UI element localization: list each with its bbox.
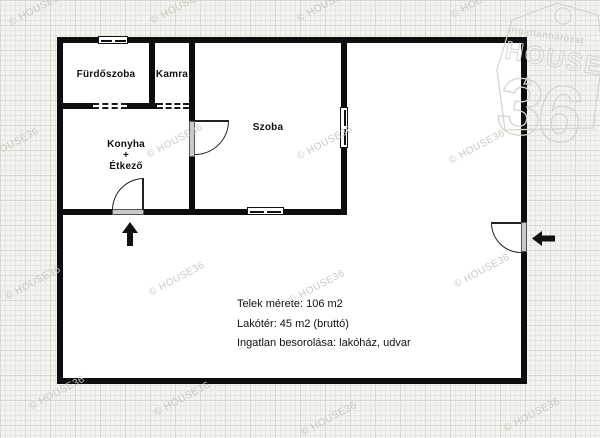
house-wall-bottom-right — [144, 209, 347, 215]
pantry-opening — [157, 103, 189, 109]
house-wall-right-upper — [341, 43, 347, 107]
watermark: © HOUSE36 — [299, 400, 358, 438]
watermark: © HOUSE36 — [7, 0, 66, 28]
watermark: © HOUSE36 — [449, 0, 508, 20]
bathroom-label: Fürdőszoba — [63, 69, 149, 80]
classification-text: Ingatlan besorolása: lakóház, udvar — [237, 334, 411, 354]
watermark: © HOUSE36 — [0, 126, 41, 165]
wall-below-bathroom — [63, 103, 93, 109]
watermark: © HOUSE36 — [3, 264, 62, 303]
pantry-label: Kamra — [153, 69, 191, 80]
kitchen-label-line2: + — [63, 150, 189, 161]
room-label: Szoba — [195, 122, 341, 133]
watermark: © HOUSE36 — [152, 380, 211, 419]
bathroom-window — [98, 36, 128, 44]
house-wall-right-lower — [341, 147, 347, 209]
bathroom-opening — [93, 103, 127, 109]
logo-tag-hole — [555, 8, 571, 24]
wall-below-pantry — [127, 103, 157, 109]
room-window-bottom — [247, 207, 284, 215]
plot-wall-right-upper — [521, 37, 527, 222]
watermark: © HOUSE36 — [149, 0, 208, 26]
plot-wall-right-lower — [521, 252, 527, 384]
room-window-right — [340, 107, 348, 148]
kitchen-label-line1: Konyha — [63, 139, 189, 150]
property-info: Telek mérete: 106 m2 Lakótér: 45 m2 (bru… — [237, 295, 411, 354]
living-area-text: Lakótér: 45 m2 (bruttó) — [237, 315, 411, 335]
kitchen-dining-label: Konyha + Étkező — [63, 139, 189, 172]
kitchen-label-line3: Étkező — [63, 161, 189, 172]
wall-kitchen-room-upper — [189, 43, 195, 121]
house-wall-bottom-left — [57, 209, 112, 215]
wall-kitchen-room-lower — [189, 157, 195, 209]
watermark: © HOUSE36 — [295, 0, 354, 24]
gate-arrow-left-icon — [532, 231, 556, 246]
entrance-arrow-up-icon — [121, 222, 139, 246]
floorplan-page: { "floorplan": { "rooms": { "furdoszoba"… — [0, 0, 600, 434]
watermark: © HOUSE36 — [502, 396, 561, 435]
plot-wall-bottom — [57, 378, 527, 384]
gate-door-jamb — [521, 222, 527, 252]
plot-size-text: Telek mérete: 106 m2 — [237, 295, 411, 315]
